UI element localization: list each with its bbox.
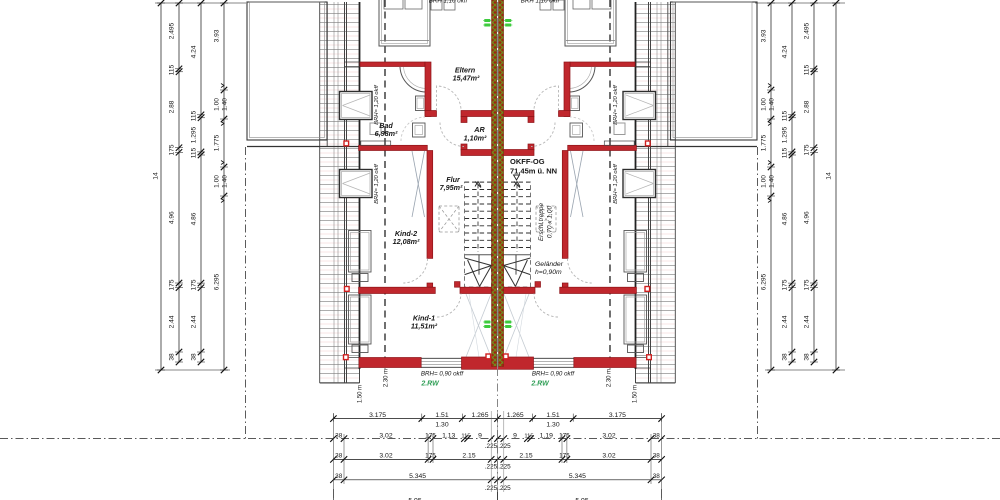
svg-text:1.19: 1.19 (540, 432, 553, 439)
svg-text:1.40: 1.40 (222, 98, 229, 111)
svg-text:1.00: 1.00 (761, 98, 768, 111)
svg-text:38: 38 (653, 432, 661, 439)
svg-text:6.295: 6.295 (761, 273, 768, 290)
svg-text:2.30 m: 2.30 m (607, 369, 613, 387)
svg-text:2.88: 2.88 (804, 100, 811, 113)
svg-text:4.24: 4.24 (191, 45, 198, 58)
svg-text:7,95m²: 7,95m² (440, 183, 463, 192)
svg-text:3.175: 3.175 (369, 412, 386, 419)
svg-text:2.88: 2.88 (169, 100, 176, 113)
svg-text:Erschl.treppe: Erschl.treppe (538, 202, 545, 241)
svg-text:1.265: 1.265 (471, 412, 488, 419)
svg-text:3.02: 3.02 (602, 432, 615, 439)
svg-text:3.02: 3.02 (379, 453, 392, 460)
svg-text:Geländer: Geländer (535, 261, 564, 268)
svg-text:38: 38 (782, 353, 789, 361)
svg-text:38: 38 (191, 353, 198, 361)
svg-text:38: 38 (335, 453, 343, 460)
svg-text:1.00: 1.00 (214, 175, 221, 188)
svg-text:2.44: 2.44 (191, 315, 198, 328)
svg-text:BRH= 1,20 okff: BRH= 1,20 okff (613, 163, 619, 204)
svg-text:BRH= 0,90 okff: BRH= 0,90 okff (421, 371, 464, 378)
svg-text:BRH 1,10 okff: BRH 1,10 okff (521, 0, 561, 5)
svg-text:4.96: 4.96 (169, 211, 176, 224)
svg-text:2.495: 2.495 (169, 22, 176, 39)
svg-text:1.40: 1.40 (769, 98, 776, 111)
svg-text:175: 175 (191, 279, 198, 290)
svg-text:BRH= 1,20 okff: BRH= 1,20 okff (374, 84, 380, 125)
svg-text:9: 9 (478, 432, 482, 439)
svg-text:.225: .225 (498, 443, 511, 450)
svg-text:1.295: 1.295 (782, 126, 789, 143)
svg-text:38: 38 (169, 353, 176, 361)
svg-text:115: 115 (782, 147, 789, 158)
svg-text:14: 14 (153, 172, 160, 180)
svg-text:12,08m²: 12,08m² (393, 237, 420, 246)
svg-text:175: 175 (425, 432, 436, 439)
svg-text:6.295: 6.295 (214, 273, 221, 290)
svg-text:38: 38 (335, 432, 343, 439)
svg-text:2.44: 2.44 (804, 315, 811, 328)
svg-text:38: 38 (804, 353, 811, 361)
svg-text:38: 38 (335, 473, 343, 480)
svg-text:4.96: 4.96 (804, 211, 811, 224)
svg-text:3.93: 3.93 (214, 29, 221, 42)
svg-text:2.15: 2.15 (519, 453, 532, 460)
svg-text:175: 175 (169, 144, 176, 155)
svg-text:BRH 1,10 okff: BRH 1,10 okff (429, 0, 469, 5)
svg-text:BRH= 1,20 okff: BRH= 1,20 okff (374, 163, 380, 204)
svg-text:175: 175 (782, 279, 789, 290)
svg-text:4.24: 4.24 (782, 45, 789, 58)
svg-text:115: 115 (524, 433, 533, 439)
svg-text:14: 14 (826, 172, 833, 180)
svg-text:1.00: 1.00 (214, 98, 221, 111)
svg-text:4.86: 4.86 (191, 212, 198, 225)
svg-text:1.13: 1.13 (442, 432, 455, 439)
svg-text:1.30: 1.30 (435, 421, 448, 428)
svg-text:9: 9 (513, 432, 517, 439)
svg-text:38: 38 (653, 473, 661, 480)
svg-text:175: 175 (425, 453, 436, 460)
svg-text:1.775: 1.775 (761, 134, 768, 151)
svg-text:2.44: 2.44 (782, 315, 789, 328)
svg-text:3.02: 3.02 (379, 432, 392, 439)
svg-text:1.40: 1.40 (769, 175, 776, 188)
svg-text:.225: .225 (498, 464, 511, 471)
svg-text:1.265: 1.265 (507, 412, 524, 419)
svg-text:6,98m²: 6,98m² (375, 129, 398, 138)
svg-text:175: 175 (804, 144, 811, 155)
svg-text:2.495: 2.495 (804, 22, 811, 39)
svg-text:5.345: 5.345 (409, 473, 426, 480)
svg-text:175: 175 (559, 453, 570, 460)
svg-text:175: 175 (169, 279, 176, 290)
svg-text:BRH= 1,20 okff: BRH= 1,20 okff (613, 84, 619, 125)
svg-text:175: 175 (559, 432, 570, 439)
svg-text:1.51: 1.51 (546, 412, 559, 419)
svg-text:1.50 m: 1.50 m (633, 385, 639, 403)
svg-text:OKFF-OG: OKFF-OG (510, 157, 545, 166)
svg-text:.225: .225 (498, 485, 511, 492)
svg-text:38: 38 (653, 453, 661, 460)
svg-text:1.50 m: 1.50 m (358, 385, 364, 403)
svg-text:2.15: 2.15 (462, 453, 475, 460)
svg-text:4.86: 4.86 (782, 212, 789, 225)
svg-text:115: 115 (804, 64, 811, 75)
svg-text:1,10m²: 1,10m² (464, 134, 487, 143)
svg-text:115: 115 (191, 147, 198, 158)
svg-text:115: 115 (191, 110, 198, 121)
svg-text:11,51m²: 11,51m² (411, 322, 438, 331)
svg-text:15,47m²: 15,47m² (453, 74, 480, 83)
svg-text:115: 115 (169, 64, 176, 75)
svg-text:1.30: 1.30 (546, 421, 559, 428)
svg-text:115: 115 (461, 433, 470, 439)
svg-text:1.40: 1.40 (222, 175, 229, 188)
svg-text:115: 115 (782, 110, 789, 121)
svg-text:3.175: 3.175 (609, 412, 626, 419)
svg-text:1.775: 1.775 (214, 134, 221, 151)
svg-text:2.30 m: 2.30 m (384, 369, 390, 387)
svg-text:71,45m ü. NN: 71,45m ü. NN (510, 167, 557, 176)
svg-text:2.RW: 2.RW (420, 381, 440, 388)
svg-text:BRH= 0,90 okff: BRH= 0,90 okff (532, 371, 575, 378)
svg-text:h=0,90m: h=0,90m (535, 269, 562, 276)
svg-text:5.345: 5.345 (569, 473, 586, 480)
svg-text:1.295: 1.295 (191, 126, 198, 143)
svg-text:2.RW: 2.RW (530, 381, 550, 388)
svg-text:1.00: 1.00 (761, 175, 768, 188)
svg-text:0,70 x 1,00: 0,70 x 1,00 (547, 206, 554, 239)
svg-text:2.44: 2.44 (169, 315, 176, 328)
svg-text:1.51: 1.51 (435, 412, 448, 419)
svg-text:3.02: 3.02 (602, 453, 615, 460)
svg-text:175: 175 (804, 279, 811, 290)
svg-text:3.93: 3.93 (761, 29, 768, 42)
